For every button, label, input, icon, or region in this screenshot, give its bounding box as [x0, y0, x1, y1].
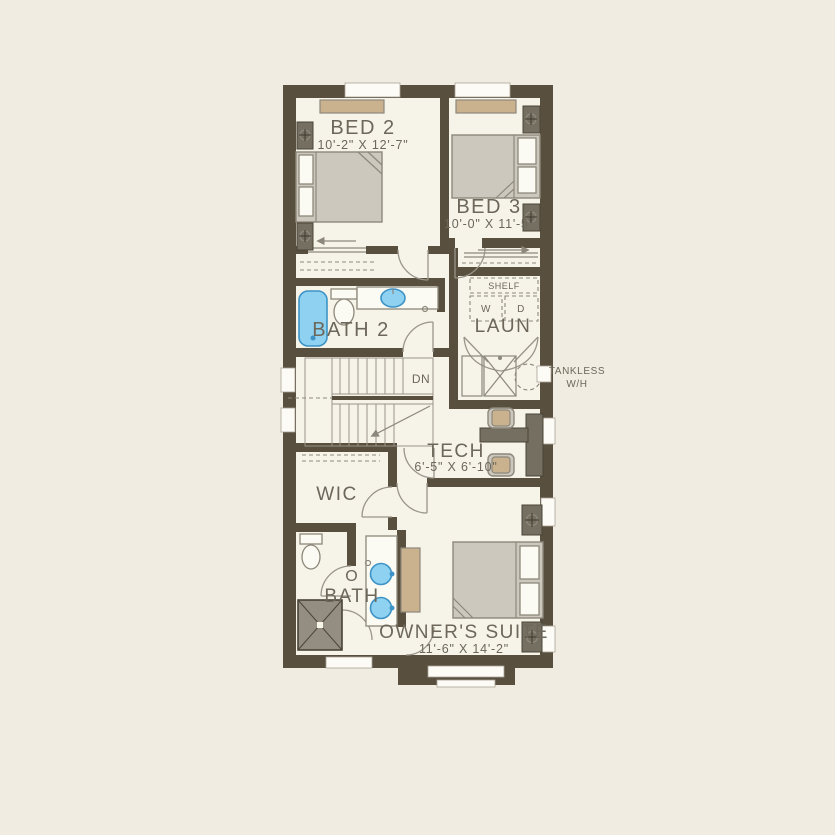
tech-chair-1 — [488, 408, 514, 428]
obath-label-2: BATH — [324, 586, 379, 607]
owners-dresser — [401, 548, 420, 612]
bed2-nightstand-2 — [297, 223, 313, 250]
stairs-dn-label: DN — [412, 372, 430, 386]
toilet-tank — [331, 289, 357, 299]
bay-window-sill — [437, 680, 495, 687]
bed2-dims: 10'-2" X 12'-7" — [318, 138, 409, 152]
bed3-pillow-1 — [518, 138, 536, 164]
bed2-nightstand-1 — [297, 122, 313, 149]
shelf-label: SHELF — [488, 281, 520, 291]
bay-window — [428, 666, 504, 677]
tankless-label-2: W/H — [566, 379, 587, 390]
tech-desk-arm — [480, 428, 528, 442]
window-stair-2 — [281, 408, 295, 432]
window-obath — [326, 657, 372, 668]
floor-plan-drawing: BED 2 10'-2" X 12'-7" BED 3 10'-0" X 11'… — [0, 0, 835, 835]
washer-label: W — [481, 304, 491, 315]
bed3-pillow-2 — [518, 167, 536, 193]
window-stair-1 — [281, 368, 295, 392]
bed2-pillow-1 — [299, 155, 313, 184]
floor-plan: BED 2 10'-2" X 12'-7" BED 3 10'-0" X 11'… — [0, 0, 835, 835]
obath-label-1: O — [345, 568, 358, 585]
dryer-label: D — [517, 304, 525, 315]
bed3-nightstand-1 — [523, 106, 540, 133]
owners-nightstand-1 — [522, 505, 542, 535]
wc-toilet-bowl — [302, 545, 320, 569]
window-owners-1 — [541, 498, 555, 526]
obath-sink-1 — [371, 564, 392, 585]
bed3-dims: 10'-0" X 11'-5" — [444, 217, 534, 231]
stair-rail-wall — [332, 396, 433, 400]
owners-suite-dims: 11'-6" X 14'-2" — [419, 642, 509, 656]
shower-drain — [317, 622, 323, 628]
wc-toilet-tank — [300, 534, 322, 544]
tech-dims: 6'-5" X 6'-10" — [414, 460, 497, 474]
tech-label: TECH — [427, 441, 485, 462]
bed3-label: BED 3 — [456, 196, 521, 218]
wic-label: WIC — [316, 484, 357, 505]
utility-faucet — [498, 356, 502, 360]
tech-desk-side — [526, 414, 543, 476]
owners-suite-label: OWNER'S SUITE — [379, 622, 549, 643]
bed3-dresser — [456, 100, 516, 113]
bed2-pillow-2 — [299, 187, 313, 216]
bath2-label: BATH 2 — [312, 319, 390, 341]
tankless-label-1: TANKLESS — [549, 366, 605, 377]
bed2-dresser — [320, 100, 384, 113]
owners-pillow-1 — [520, 546, 539, 579]
bed2-label: BED 2 — [330, 117, 395, 139]
window-bed3 — [455, 83, 510, 97]
owners-pillow-2 — [520, 583, 539, 615]
laundry-label: LAUN — [475, 316, 532, 337]
window-bed2 — [345, 83, 400, 97]
shower — [298, 600, 342, 650]
